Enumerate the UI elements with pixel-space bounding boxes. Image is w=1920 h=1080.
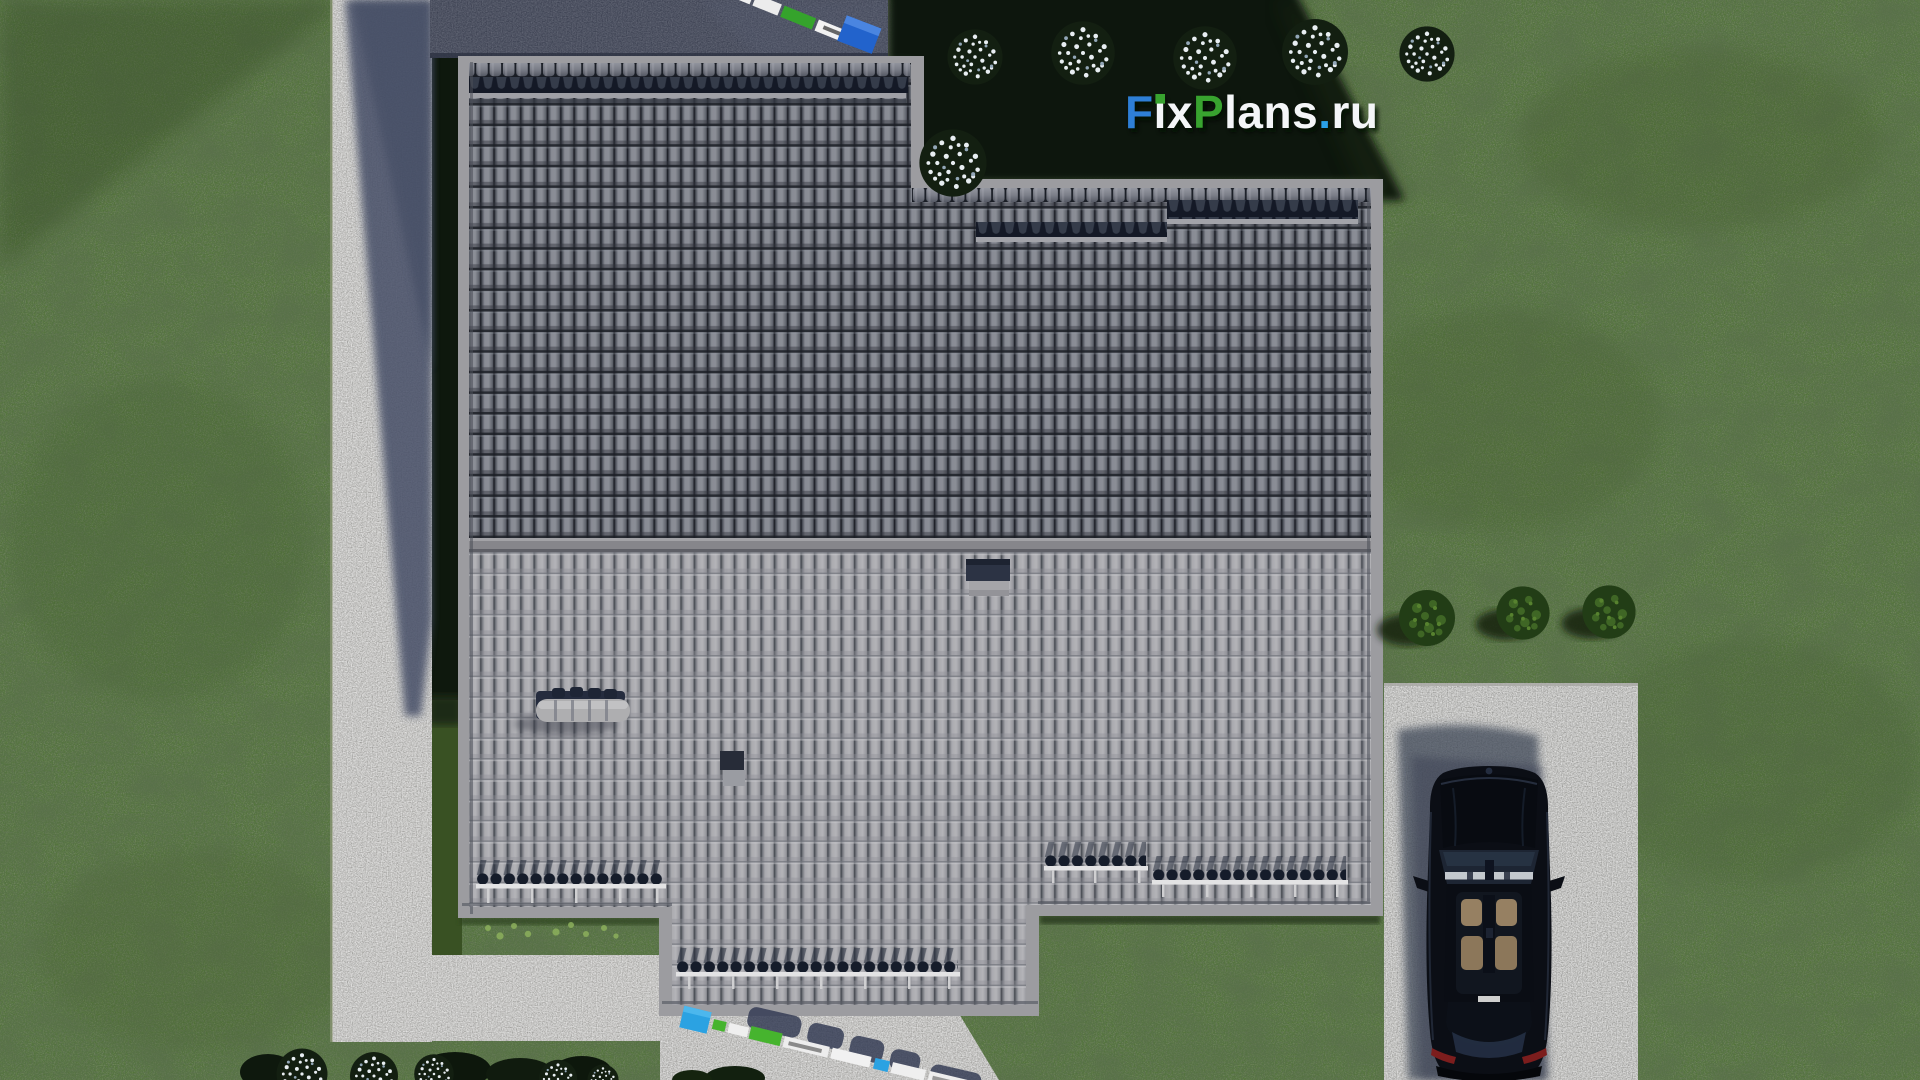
svg-text:FixPlans.ru: FixPlans.ru (1125, 86, 1378, 138)
